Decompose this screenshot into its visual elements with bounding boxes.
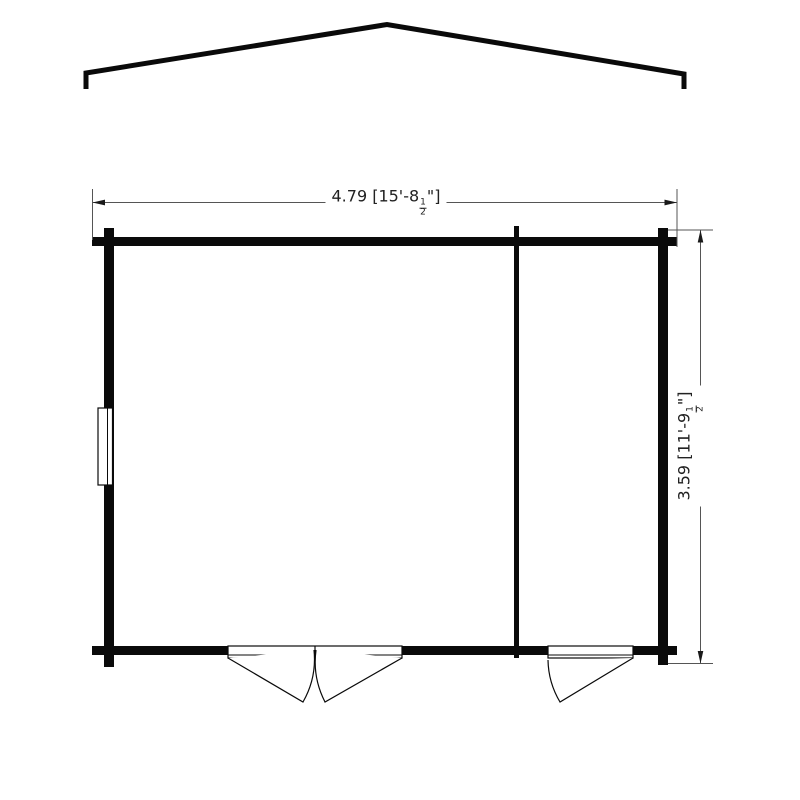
width-metric: 4.79 (331, 187, 367, 206)
width-imperial-prefix: [15'-8 (367, 187, 419, 206)
height-arrow-top (698, 230, 704, 243)
single-door (548, 646, 633, 702)
height-metric: 3.59 (675, 465, 694, 501)
wall-right (658, 228, 668, 665)
width-arrow-left (93, 200, 106, 206)
window-left-wall (98, 408, 113, 485)
height-arrow-bottom (698, 651, 704, 664)
wall-bottom-left-segment (92, 646, 228, 655)
double-door-left-leaf-swing (228, 650, 314, 702)
height-imperial-suffix: "] (675, 391, 694, 405)
width-dimension-label: 4.79 [15'-812"] (325, 187, 446, 220)
height-fraction: 12 (686, 405, 706, 413)
double-door-right-leaf-swing (315, 650, 402, 702)
height-dimension-label: 3.59 [11'-912"] (675, 385, 708, 506)
double-door (228, 646, 402, 702)
floor-plan-drawing: 4.79 [15'-812"] 3.59 [11'-912"] (0, 0, 800, 800)
width-arrow-right (665, 200, 678, 206)
wall-bottom-middle-segment (402, 646, 548, 655)
height-imperial-prefix: [11'-9 (675, 413, 694, 465)
width-imperial-suffix: "] (427, 187, 441, 206)
internal-partition-wall (514, 226, 519, 658)
roof-apex-profile (86, 25, 684, 90)
wall-bottom-right-segment (633, 646, 677, 655)
wall-top (92, 237, 677, 246)
single-door-leaf-swing (548, 658, 633, 702)
